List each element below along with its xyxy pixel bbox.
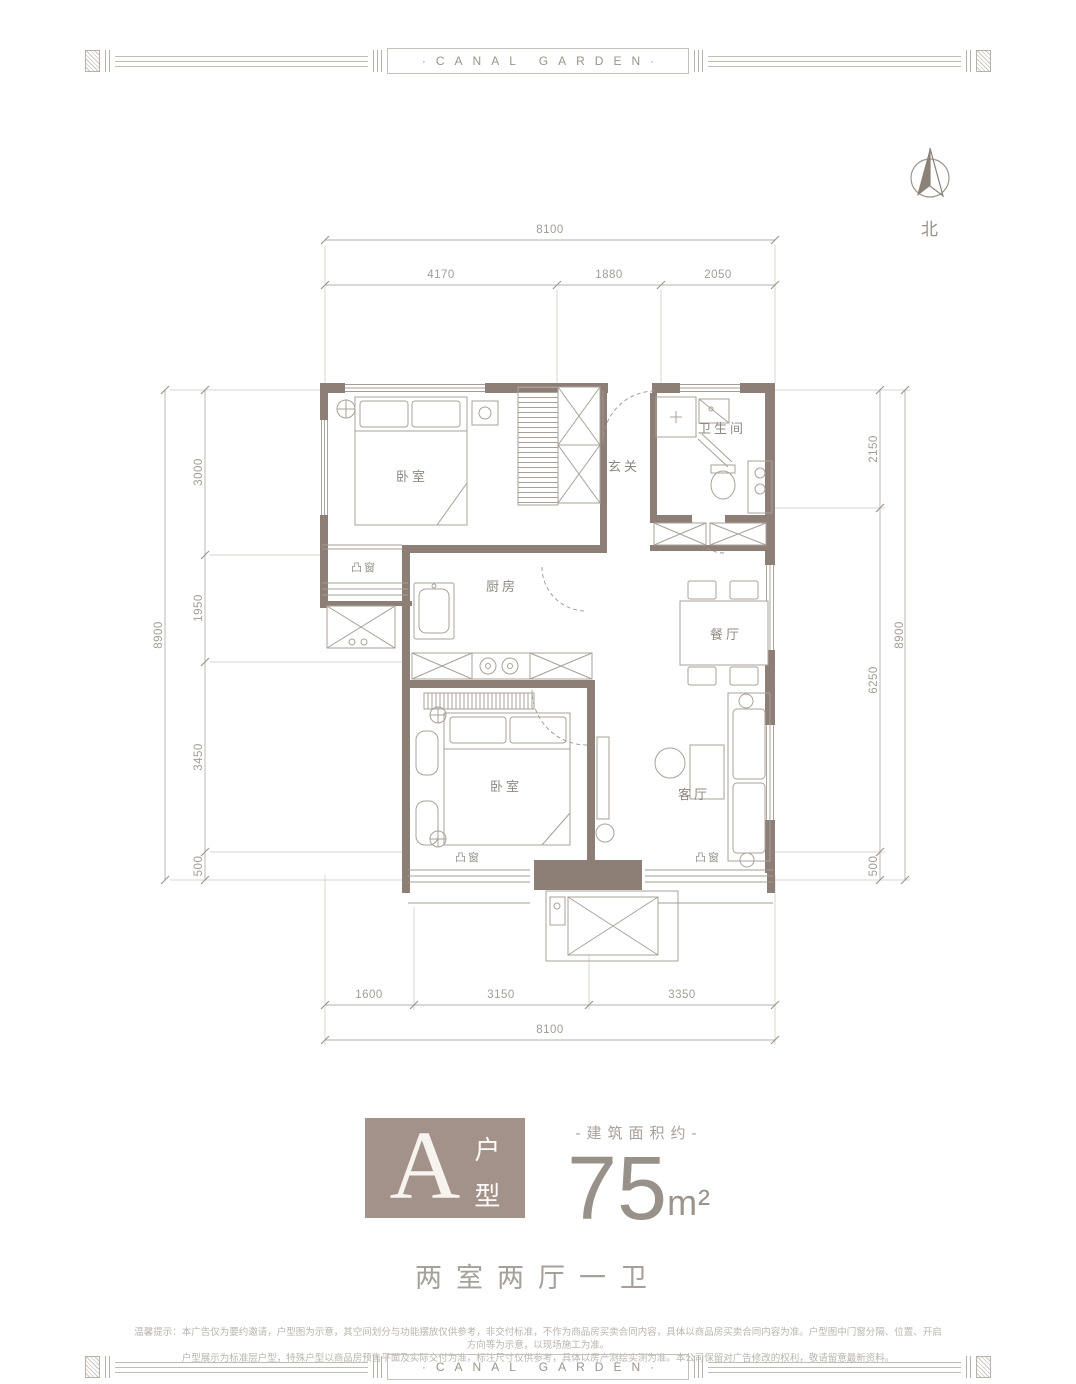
dim-top-2: 1880 bbox=[595, 269, 623, 281]
hall-cabinets bbox=[654, 523, 766, 545]
bedroom1-furniture bbox=[337, 387, 600, 525]
dim-left-4: 500 bbox=[193, 856, 205, 877]
dimension-labels: 8100 4170 1880 2050 1600 3150 3350 8100 … bbox=[153, 224, 906, 1036]
elevator-core bbox=[546, 891, 678, 961]
bathroom-fixtures bbox=[656, 397, 772, 513]
label-bay-window-2: 凸窗 bbox=[455, 850, 481, 864]
dim-top-total: 8100 bbox=[536, 224, 564, 236]
dim-left-3: 3450 bbox=[193, 743, 205, 771]
banner-endcap-left bbox=[85, 1356, 100, 1378]
floor-plan-drawing: 8100 4170 1880 2050 1600 3150 3350 8100 … bbox=[150, 215, 940, 1075]
layout-description: 两室两厅一卫 bbox=[0, 1256, 1076, 1295]
floor-plan: 8100 4170 1880 2050 1600 3150 3350 8100 … bbox=[150, 215, 940, 1075]
dim-top-1: 4170 bbox=[427, 269, 455, 281]
label-bay-window-3: 凸窗 bbox=[695, 850, 721, 864]
label-living: 客厅 bbox=[678, 787, 710, 802]
banner-lines bbox=[708, 56, 961, 67]
unit-letter: A bbox=[390, 1118, 461, 1214]
dim-bottom-2: 3150 bbox=[487, 989, 515, 1001]
area-block: -建筑面积约- 75m² bbox=[567, 1118, 711, 1233]
dim-right-total: 8900 bbox=[894, 621, 906, 649]
dim-top-3: 2050 bbox=[704, 269, 732, 281]
label-dining: 餐厅 bbox=[710, 627, 742, 642]
dim-bottom-3: 3350 bbox=[668, 989, 696, 1001]
label-bay-window-1: 凸窗 bbox=[351, 560, 377, 574]
top-banner: ·CANAL GARDEN· bbox=[85, 46, 991, 76]
dim-right-3: 500 bbox=[868, 856, 880, 877]
banner-endcap-left bbox=[85, 50, 100, 72]
label-bedroom2: 卧室 bbox=[490, 779, 522, 794]
banner-lines bbox=[708, 1362, 961, 1373]
dim-left-2: 1950 bbox=[193, 594, 205, 622]
dim-bottom-total: 8100 bbox=[536, 1024, 564, 1036]
banner-lines bbox=[115, 1362, 368, 1373]
banner-endcap-right bbox=[976, 50, 991, 72]
dimension-lines bbox=[161, 236, 910, 1045]
unit-type: 户 型 bbox=[474, 1130, 500, 1213]
dim-right-2: 6250 bbox=[868, 666, 880, 694]
label-kitchen: 厨房 bbox=[486, 579, 518, 594]
area-value: 75m² bbox=[567, 1147, 711, 1233]
banner-endcap-right bbox=[976, 1356, 991, 1378]
disclaimer-line1: 温馨提示：本广告仅为要约邀请，户型图为示意，其空间划分与功能摆放仅供参考，非交付… bbox=[130, 1326, 946, 1352]
bottom-banner: ·CANAL GARDEN· bbox=[85, 1352, 991, 1382]
dim-left-total: 8900 bbox=[153, 621, 165, 649]
banner-lines bbox=[115, 56, 368, 67]
dim-left-1: 3000 bbox=[193, 458, 205, 486]
banner-title: ·CANAL GARDEN· bbox=[387, 48, 689, 74]
ac-platform bbox=[327, 606, 395, 648]
dim-right-1: 2150 bbox=[868, 435, 880, 463]
unit-type-char2: 型 bbox=[474, 1176, 500, 1213]
living-furniture bbox=[596, 693, 770, 867]
label-entry: 玄关 bbox=[608, 459, 640, 474]
area-unit: m² bbox=[667, 1182, 711, 1223]
unit-badge: A 户 型 bbox=[365, 1118, 525, 1218]
banner-title: ·CANAL GARDEN· bbox=[387, 1354, 689, 1380]
label-bedroom1: 卧室 bbox=[396, 469, 428, 484]
label-bathroom: 卫生间 bbox=[698, 421, 746, 436]
dim-bottom-1: 1600 bbox=[355, 989, 383, 1001]
unit-info: A 户 型 -建筑面积约- 75m² bbox=[0, 1118, 1076, 1233]
compass-icon bbox=[893, 146, 967, 208]
unit-type-char1: 户 bbox=[474, 1130, 500, 1167]
kitchen-fixtures bbox=[412, 583, 592, 709]
